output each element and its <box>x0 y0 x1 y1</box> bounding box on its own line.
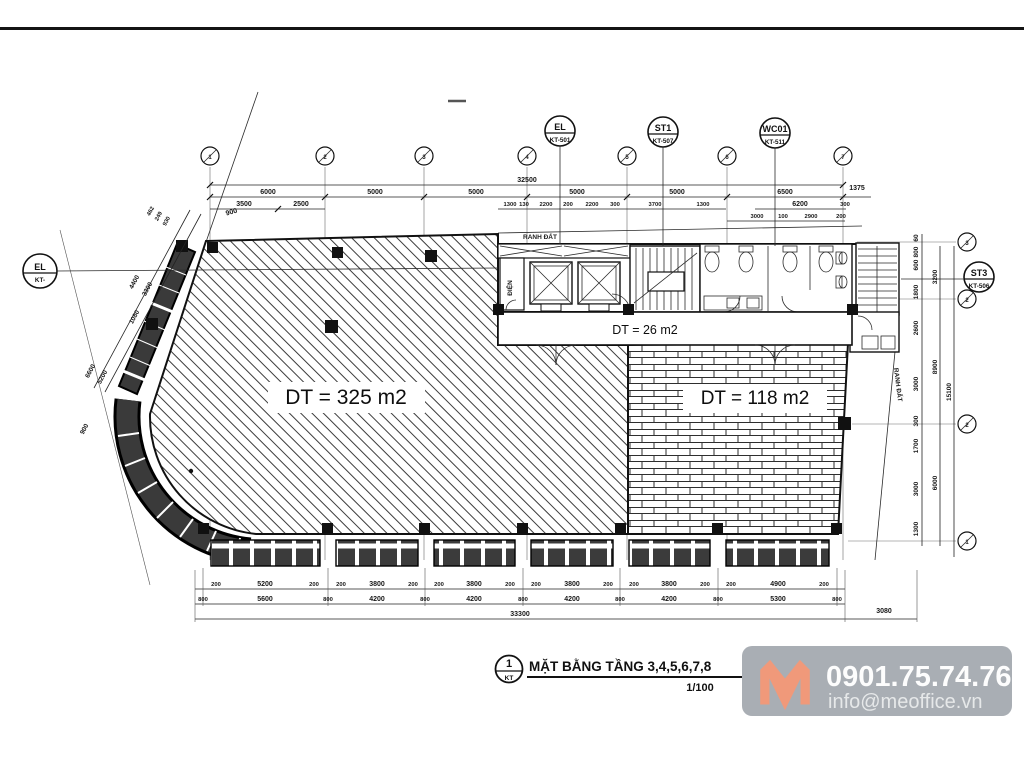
svg-text:EL: EL <box>554 122 566 132</box>
svg-text:ST3: ST3 <box>971 268 988 278</box>
svg-text:200: 200 <box>819 582 829 588</box>
svg-text:2500: 2500 <box>293 201 309 208</box>
svg-text:6500: 6500 <box>777 189 793 196</box>
svg-text:4200: 4200 <box>661 596 677 603</box>
svg-text:1300: 1300 <box>697 202 710 208</box>
svg-text:3800: 3800 <box>661 581 677 588</box>
office-area-118 <box>628 343 848 534</box>
svg-text:200: 200 <box>336 582 346 588</box>
svg-text:EL: EL <box>34 262 46 272</box>
svg-text:KT-501: KT-501 <box>550 137 571 144</box>
svg-text:200: 200 <box>408 582 418 588</box>
svg-text:3000: 3000 <box>913 481 920 496</box>
survey-dot <box>189 469 193 473</box>
svg-text:800: 800 <box>420 597 430 603</box>
svg-text:100: 100 <box>778 214 788 220</box>
svg-text:4200: 4200 <box>564 596 580 603</box>
svg-text:600: 600 <box>913 259 920 270</box>
svg-text:3000: 3000 <box>751 214 764 220</box>
svg-text:1300: 1300 <box>504 202 517 208</box>
svg-text:300: 300 <box>840 202 850 208</box>
svg-text:5000: 5000 <box>468 189 484 196</box>
svg-text:5200: 5200 <box>257 581 273 588</box>
floor-plan-svg: DT = 325 m2 DT = 118 m2 DT = 26 m2 RANH … <box>0 0 1024 768</box>
rear-room <box>850 312 899 352</box>
svg-text:6000: 6000 <box>932 475 939 490</box>
detail-sheet: KT <box>505 675 514 682</box>
svg-text:300: 300 <box>913 415 920 426</box>
svg-text:4200: 4200 <box>369 596 385 603</box>
svg-text:6200: 6200 <box>792 201 808 208</box>
svg-text:200: 200 <box>726 582 736 588</box>
svg-text:3800: 3800 <box>564 581 580 588</box>
svg-text:3000: 3000 <box>913 376 920 391</box>
svg-text:4900: 4900 <box>770 581 786 588</box>
drawing-title: MẶT BẰNG TẦNG 3,4,5,6,7,8 <box>529 659 712 674</box>
area-label-main: DT = 325 m2 <box>285 386 407 409</box>
svg-text:2200: 2200 <box>586 202 599 208</box>
area-label-corridor: DT = 26 m2 <box>612 323 677 337</box>
svg-text:KT-506: KT-506 <box>969 283 990 290</box>
wc-zone <box>700 244 852 312</box>
dien-room-label: ĐIỆN <box>505 280 514 296</box>
elevator-2 <box>578 262 620 311</box>
svg-text:5000: 5000 <box>367 189 383 196</box>
svg-text:15100: 15100 <box>946 383 953 401</box>
area-label-brick: DT = 118 m2 <box>701 388 810 409</box>
svg-text:800: 800 <box>323 597 333 603</box>
svg-text:4200: 4200 <box>466 596 482 603</box>
svg-text:200: 200 <box>563 202 573 208</box>
svg-text:1700: 1700 <box>913 438 920 453</box>
svg-text:60: 60 <box>913 234 920 242</box>
svg-text:5000: 5000 <box>569 189 585 196</box>
svg-text:ST1: ST1 <box>655 123 672 133</box>
svg-text:200: 200 <box>629 582 639 588</box>
stair-st3 <box>856 243 899 315</box>
svg-text:5300: 5300 <box>770 596 786 603</box>
svg-text:3080: 3080 <box>876 608 892 615</box>
svg-text:8900: 8900 <box>932 359 939 374</box>
svg-text:3800: 3800 <box>466 581 482 588</box>
svg-text:1800: 1800 <box>913 284 920 299</box>
svg-text:3700: 3700 <box>649 202 662 208</box>
svg-text:800: 800 <box>713 597 723 603</box>
svg-text:200: 200 <box>603 582 613 588</box>
svg-text:KT-511: KT-511 <box>765 139 786 146</box>
svg-text:2200: 2200 <box>540 202 553 208</box>
svg-text:300: 300 <box>610 202 620 208</box>
detail-number: 1 <box>506 658 512 670</box>
contact-email: info@meoffice.vn <box>828 691 982 713</box>
svg-text:800: 800 <box>832 597 842 603</box>
svg-text:130: 130 <box>519 202 529 208</box>
svg-text:200: 200 <box>211 582 221 588</box>
svg-text:33300: 33300 <box>510 611 530 618</box>
svg-text:2900: 2900 <box>805 214 818 220</box>
svg-text:KT-: KT- <box>35 277 45 284</box>
svg-text:200: 200 <box>505 582 515 588</box>
svg-text:6000: 6000 <box>260 189 276 196</box>
elevator-1 <box>530 262 572 311</box>
svg-text:2600: 2600 <box>913 320 920 335</box>
svg-text:WC01: WC01 <box>762 124 787 134</box>
contact-badge: 0901.75.74.76 info@meoffice.vn <box>742 646 1012 716</box>
drawing-scale: 1/100 <box>686 682 714 694</box>
contact-phone: 0901.75.74.76 <box>826 661 1011 693</box>
svg-text:3800: 3800 <box>369 581 385 588</box>
top-rule <box>0 27 1024 30</box>
svg-text:800: 800 <box>913 246 920 257</box>
svg-text:800: 800 <box>615 597 625 603</box>
svg-text:32500: 32500 <box>517 177 537 184</box>
svg-text:800: 800 <box>198 597 208 603</box>
svg-text:200: 200 <box>531 582 541 588</box>
svg-text:200: 200 <box>836 214 846 220</box>
svg-text:200: 200 <box>309 582 319 588</box>
svg-text:1300: 1300 <box>913 521 920 536</box>
svg-text:5000: 5000 <box>669 189 685 196</box>
svg-text:5600: 5600 <box>257 596 273 603</box>
svg-text:3500: 3500 <box>236 201 252 208</box>
drawing-sheet: DT = 325 m2 DT = 118 m2 DT = 26 m2 RANH … <box>0 0 1024 768</box>
svg-text:200: 200 <box>700 582 710 588</box>
svg-text:800: 800 <box>518 597 528 603</box>
svg-text:KT-507: KT-507 <box>653 138 674 145</box>
svg-text:3200: 3200 <box>932 269 939 284</box>
svg-text:1375: 1375 <box>849 185 865 192</box>
svg-text:200: 200 <box>434 582 444 588</box>
